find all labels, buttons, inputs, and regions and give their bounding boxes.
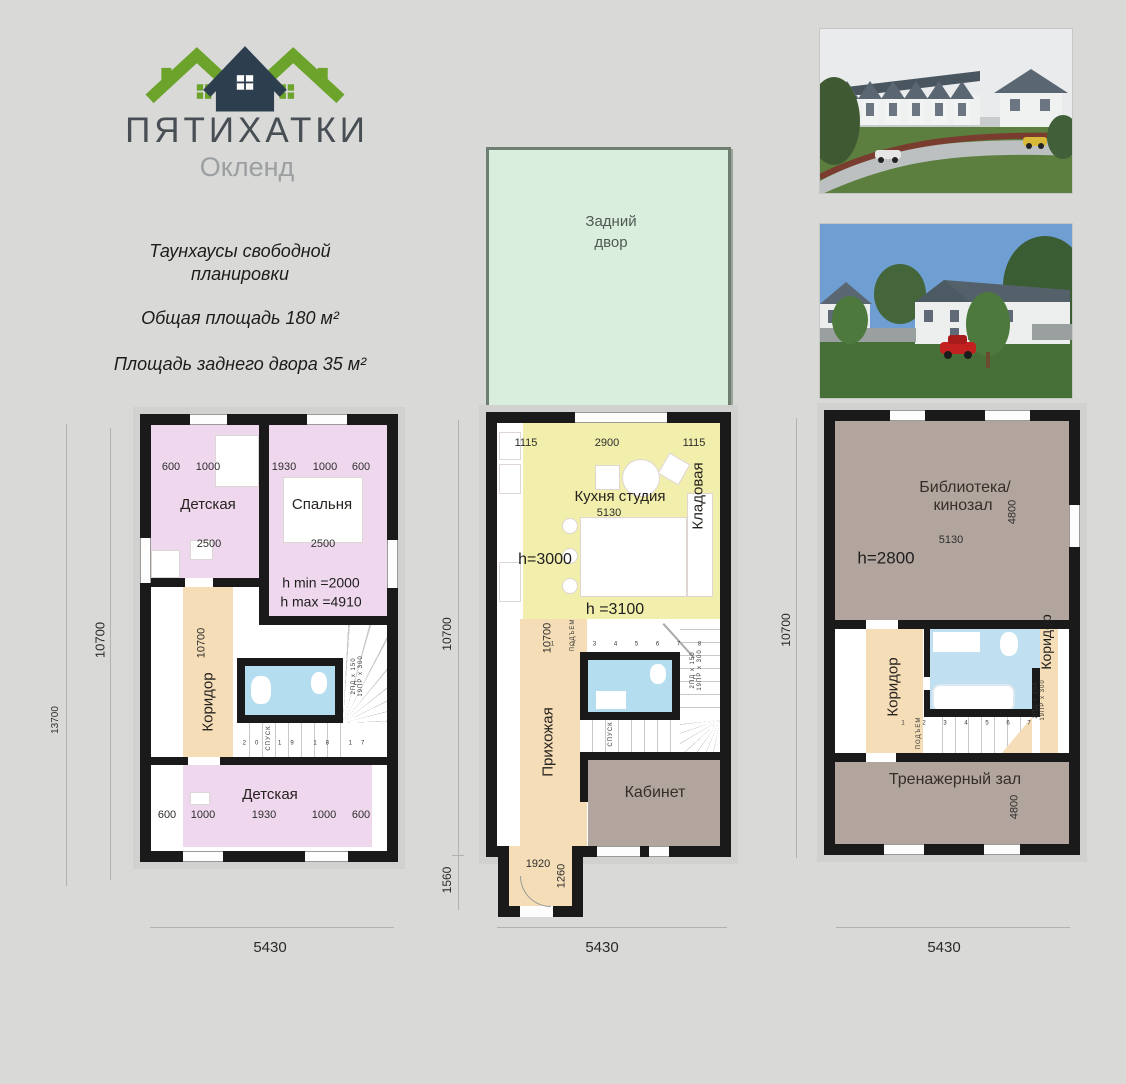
stair-down-label: СПУСК [608, 721, 614, 746]
stair-note: 2ПД x 150 [690, 651, 696, 688]
brand-subtitle: Окленд [200, 153, 295, 183]
room-label-bedroom: Спальня [292, 497, 352, 514]
dimension-line [836, 927, 1070, 928]
description-total-area: Общая площадь 180 м² [141, 309, 339, 329]
window-icon [890, 410, 925, 421]
stairs-run [580, 720, 680, 752]
room-label-kids-bottom: Детская [242, 787, 298, 804]
room-kids-bottom [183, 765, 372, 847]
window-icon [575, 412, 667, 423]
wall [259, 425, 269, 616]
dim-height-entry: 1560 [441, 867, 453, 894]
window-icon [307, 414, 347, 425]
door-opening [520, 906, 553, 917]
bathroom [237, 658, 343, 723]
dimension-tick [452, 855, 464, 856]
dim-label: 600 [158, 809, 176, 821]
dim-label: 1930 [252, 809, 276, 821]
sofa-icon [580, 517, 687, 597]
window-icon [1069, 505, 1080, 547]
stair-note: 19ПР x 300 [697, 649, 703, 690]
wall [930, 709, 1040, 717]
room-label-hallway: Прихожая [541, 707, 556, 777]
toilet-icon [311, 672, 327, 694]
stool-icon [562, 518, 578, 534]
stairs-winder [680, 720, 720, 752]
bed-icon [215, 435, 259, 487]
toilet-icon [1000, 632, 1018, 656]
door-opening [185, 578, 213, 587]
room-label-corridor-left: Коридор [886, 657, 901, 716]
backyard-label: двор [594, 235, 627, 252]
dim-width: 5430 [585, 940, 618, 957]
hall-dim-label: 10700 [543, 623, 554, 654]
toilet-icon [650, 664, 666, 684]
wardrobe-icon [190, 792, 210, 805]
height-label: h=2800 [857, 550, 914, 569]
dim-label: 600 [352, 461, 370, 473]
height-max-label: h max =4910 [280, 594, 361, 609]
wall [151, 757, 387, 765]
backyard-label: Задний [585, 214, 636, 231]
dim-height: 10700 [780, 613, 792, 646]
dimension-line [458, 420, 459, 910]
corridor-dim-label: 10700 [197, 628, 208, 659]
height-label-mid: h =3100 [586, 601, 644, 619]
dim-entry-width: 1920 [526, 858, 550, 870]
wall [580, 760, 588, 802]
dim-label: 5130 [597, 507, 621, 519]
window-icon [597, 846, 640, 857]
wardrobe-icon [151, 550, 180, 578]
chair-icon [595, 465, 620, 490]
description-line-2: планировки [191, 265, 289, 285]
door-opening [188, 757, 220, 765]
dim-height-outer: 13700 [51, 706, 61, 734]
dim-label: 2500 [197, 538, 221, 550]
floorplan-ground: 1 2 3 4 5 6 7 8 ПОДЪЕМ СПУСК 2ПД x 150 1… [486, 412, 731, 917]
dim-width: 5430 [253, 940, 286, 957]
window-icon [305, 851, 348, 862]
bathroom-large [930, 629, 1040, 717]
washer-icon [596, 691, 626, 709]
townhouse-floorplan-poster: ПЯТИХАТКИ Окленд Таунхаусы свободной пла… [0, 0, 1126, 1084]
window-icon [985, 410, 1030, 421]
double-sink-icon [933, 632, 980, 652]
room-label-office: Кабинет [625, 784, 686, 802]
dim-label: 600 [352, 809, 370, 821]
window-icon [984, 844, 1020, 855]
door-opening [866, 620, 898, 629]
stair-step-numbers: 20 19 18 17 [243, 741, 374, 748]
window-icon [190, 414, 227, 425]
dim-label: 1930 [272, 461, 296, 473]
dim-label: 2500 [311, 538, 335, 550]
stair-up-label: ПОДЪЕМ [916, 717, 922, 750]
logo-roofs-icon [145, 40, 345, 114]
stairs-winder [343, 625, 387, 723]
dim-label: 5130 [939, 534, 963, 546]
room-label-corridor: Коридор [201, 672, 216, 731]
stair-note: 2ПД x 150 [1033, 681, 1039, 718]
stair-note: 19ПР x 300 [358, 655, 364, 696]
backyard: Задний двор [486, 147, 731, 411]
dim-label: 2900 [595, 437, 619, 449]
floorplan-second: Библиотека/ кинозал 4800 5130 h=2800 Кор… [824, 410, 1080, 855]
wall [259, 616, 387, 625]
window-icon [387, 540, 398, 588]
dimension-line [110, 428, 111, 880]
counter-icon [499, 464, 521, 494]
dim-label: 4800 [1010, 795, 1021, 819]
sink-icon [251, 676, 271, 704]
description-backyard-area: Площадь заднего двора 35 м² [114, 355, 366, 375]
room-label-gym: Тренажерный зал [889, 771, 1021, 789]
dim-height-main: 10700 [441, 617, 453, 650]
stair-note: 2ПД x 150 [351, 657, 357, 694]
door-opening [866, 753, 896, 762]
room-label-library: Библиотека/ [919, 479, 1010, 497]
dim-label: 4800 [1008, 500, 1019, 524]
brand-title: ПЯТИХАТКИ [125, 112, 369, 151]
room-label-kids-top: Детская [180, 497, 236, 514]
room-label-pantry: Кладовая [691, 462, 706, 529]
window-icon [649, 846, 669, 857]
stair-up-label: ПОДЪЕМ [570, 619, 576, 652]
room-label-library: кинозал [933, 497, 992, 515]
dim-height-inner: 10700 [94, 622, 107, 658]
bathroom [580, 652, 680, 720]
dim-label: 1115 [515, 437, 538, 449]
stair-note: 19ПР x 300 [1040, 679, 1046, 720]
dimension-line [796, 418, 797, 858]
room-library [835, 421, 1069, 620]
dim-label: 1115 [683, 437, 706, 449]
room-label-kitchen: Кухня студия [574, 489, 665, 506]
stair-down-label: СПУСК [266, 725, 272, 750]
dim-label: 600 [162, 461, 180, 473]
dim-label: 1000 [191, 809, 215, 821]
dim-label: 1000 [312, 809, 336, 821]
room-office [588, 760, 720, 846]
photo-townhouses-street [820, 224, 1072, 398]
height-min-label: h min =2000 [282, 575, 359, 590]
dim-width: 5430 [927, 940, 960, 957]
bathtub-icon [932, 684, 1015, 712]
photo-townhouses-aerial [820, 29, 1072, 193]
dim-label: 1000 [313, 461, 337, 473]
dim-label: 1000 [196, 461, 220, 473]
dim-entry-depth: 1260 [557, 864, 568, 888]
window-icon [140, 538, 151, 583]
stool-icon [562, 578, 578, 594]
dimension-line [497, 927, 727, 928]
dimension-line [66, 424, 67, 886]
window-icon [183, 851, 223, 862]
wall [924, 629, 930, 677]
floorplan-attic: 20 19 18 17 СПУСК 2ПД x 150 19ПР x 300 6… [140, 414, 398, 862]
height-label-kitchen: h=3000 [518, 551, 572, 569]
window-icon [884, 844, 924, 855]
description-line-1: Таунхаусы свободной [149, 242, 330, 262]
wall [580, 752, 720, 760]
room-label-corridor-right: Коридор [1039, 614, 1053, 669]
dimension-line [150, 927, 394, 928]
